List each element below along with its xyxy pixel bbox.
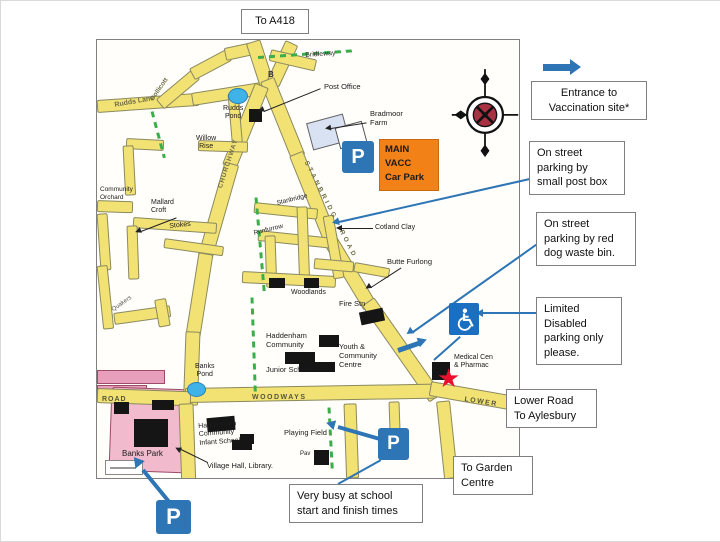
label-rudds-pond: Rudds Pond — [223, 105, 243, 122]
road-south-mid — [344, 403, 360, 478]
street — [97, 265, 115, 330]
postbox-parking-box: On street parking by small post box — [529, 141, 625, 195]
banks-park-building — [134, 419, 168, 447]
label-junior-school-1: Haddenham Community — [266, 332, 307, 350]
street — [389, 401, 401, 429]
footpath — [151, 111, 166, 158]
street — [154, 298, 171, 328]
label-mallard-croft: Mallard Croft — [151, 199, 174, 216]
building — [114, 402, 129, 414]
entrance-legend-arrow — [543, 64, 571, 71]
building — [304, 278, 319, 288]
entrance-legend-arrow-head — [570, 59, 581, 75]
label-community-orchard: Community Orchard — [100, 186, 133, 201]
footpath — [251, 297, 257, 393]
banks-park-p-icon: P — [156, 500, 191, 534]
playing-field-p-icon: P — [378, 428, 409, 460]
road-churchway-3 — [185, 252, 213, 337]
label-banks-pond: Banks Pond — [195, 363, 214, 380]
disabled-leader-line — [483, 312, 536, 314]
banks-road-strip — [97, 370, 165, 384]
street — [314, 258, 355, 272]
cotland-leader-arrow — [336, 225, 342, 231]
compass-icon — [450, 64, 520, 164]
label-playing-field: Playing Field — [284, 429, 327, 438]
label-junior-school-2: Junior School — [266, 366, 311, 375]
label-post-office: Post Office — [324, 83, 361, 92]
road-label-road-west: ROAD — [102, 396, 127, 403]
label-woodlands: Woodlands — [291, 289, 326, 297]
bridleway-label: Bridleway — [305, 50, 336, 60]
b-marker: B — [268, 70, 274, 79]
bradmoor-leader-arrow — [325, 125, 332, 132]
building — [269, 278, 285, 288]
lower-road-box: Lower Road To Aylesbury — [506, 389, 597, 428]
pavilion-building — [314, 450, 329, 465]
main-carpark-p-icon: P — [342, 141, 374, 173]
road-label-woodways: WOODWAYS — [252, 394, 307, 401]
road-south-from-crossroads — [179, 403, 197, 479]
postbox-leader-arrow — [331, 217, 340, 226]
garden-centre-box: To Garden Centre — [453, 456, 533, 495]
label-fire-stn: Fire Stn — [339, 300, 365, 309]
label-banks-park: Banks Park — [122, 449, 163, 458]
youth-centre-building — [319, 335, 339, 347]
road-woodways — [185, 384, 437, 403]
disabled-parking-icon — [449, 303, 479, 335]
label-village-hall: Village Hall, Library. — [207, 462, 273, 471]
medical-centre-star-icon: ★ — [437, 365, 460, 391]
label-butte-furlong: Butte Furlong — [387, 258, 432, 267]
building — [152, 400, 174, 410]
label-bradmoor-farm: Bradmoor Farm — [370, 110, 403, 128]
main-vacc-carpark-sign: MAIN VACC Car Park — [379, 139, 439, 191]
disabled-parking-box: Limited Disabled parking only please. — [536, 297, 622, 365]
label-willow-rise: Willow Rise — [196, 135, 216, 152]
village-hall-building — [240, 434, 254, 444]
label-pavilion: Pav — [300, 451, 310, 458]
street — [97, 200, 133, 213]
street — [242, 271, 336, 288]
map-panel: Rudds Lane Dollicott CHURCHWAY STANBRIDG… — [96, 39, 520, 479]
rudds-pond — [228, 88, 248, 104]
dogwaste-parking-box: On street parking by red dog waste bin. — [536, 212, 636, 266]
school-busy-box: Very busy at school start and finish tim… — [289, 484, 423, 523]
vaccination-site-map-slide: Rudds Lane Dollicott CHURCHWAY STANBRIDG… — [0, 0, 720, 542]
to-a418-sign: To A418 — [241, 9, 309, 34]
street — [97, 213, 112, 271]
cotland-leader — [342, 228, 373, 229]
entrance-legend-box: Entrance to Vaccination site* — [531, 81, 647, 120]
label-youth-centre: Youth & Community Centre — [339, 343, 377, 370]
label-infant-school: Haddenham Community Infant School — [198, 420, 241, 448]
label-cotland-clay: Cotland Clay — [375, 224, 415, 232]
banks-pond — [187, 382, 206, 397]
